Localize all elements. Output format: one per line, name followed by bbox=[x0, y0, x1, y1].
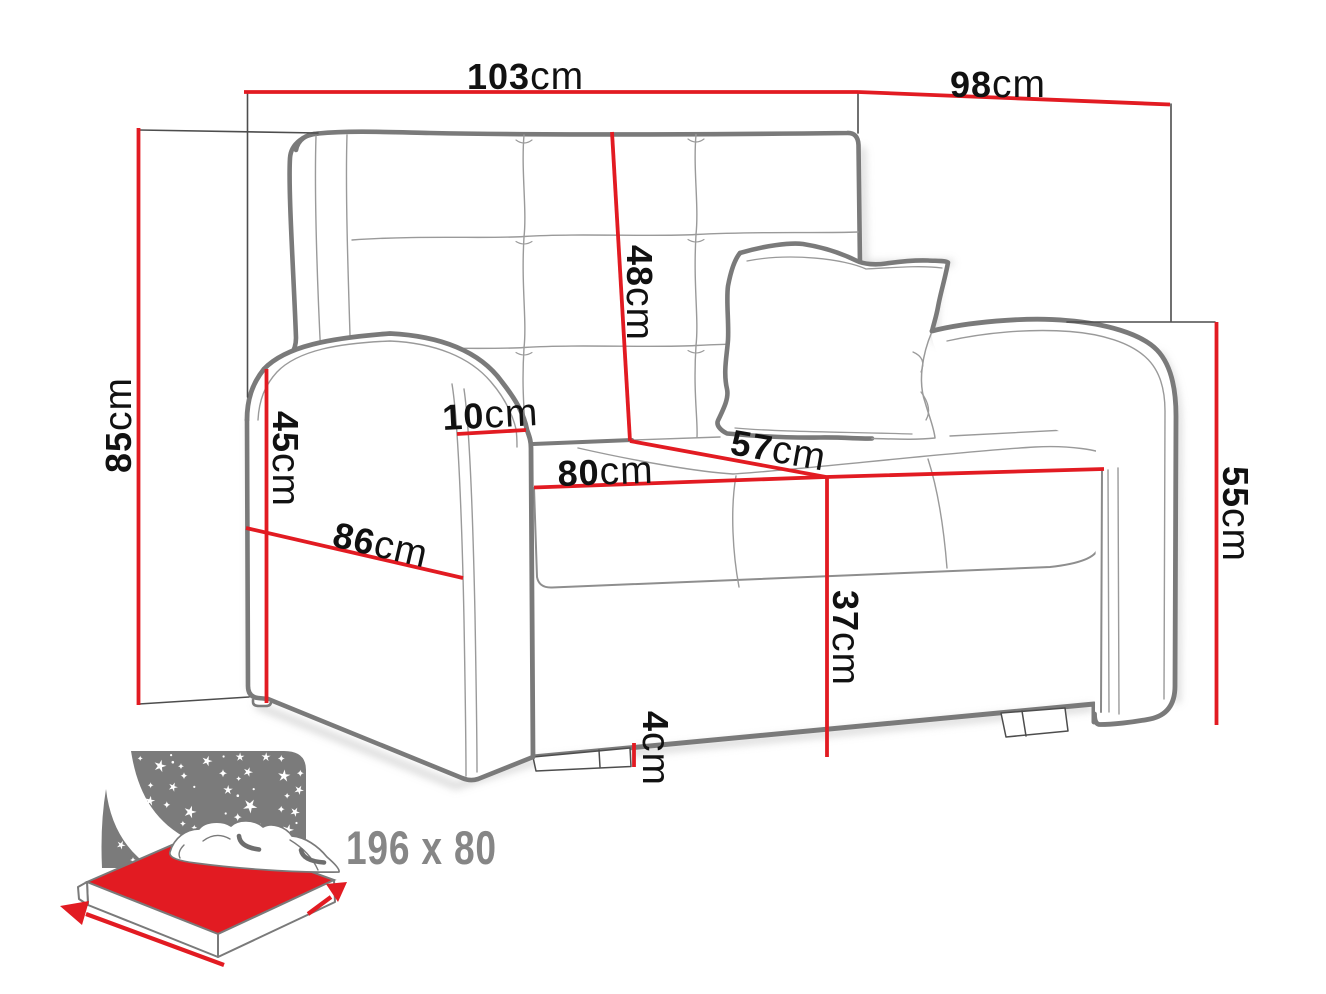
svg-text:80cm: 80cm bbox=[557, 449, 654, 495]
svg-text:103cm: 103cm bbox=[467, 55, 584, 98]
svg-text:85cm: 85cm bbox=[97, 377, 140, 473]
svg-text:45cm: 45cm bbox=[264, 411, 307, 507]
svg-text:10cm: 10cm bbox=[441, 391, 539, 439]
svg-text:196 x 80: 196 x 80 bbox=[346, 822, 497, 874]
svg-text:4cm: 4cm bbox=[634, 711, 677, 786]
svg-text:98cm: 98cm bbox=[950, 63, 1046, 106]
svg-text:37cm: 37cm bbox=[824, 590, 867, 686]
svg-text:55cm: 55cm bbox=[1214, 466, 1257, 562]
svg-text:48cm: 48cm bbox=[618, 245, 661, 341]
